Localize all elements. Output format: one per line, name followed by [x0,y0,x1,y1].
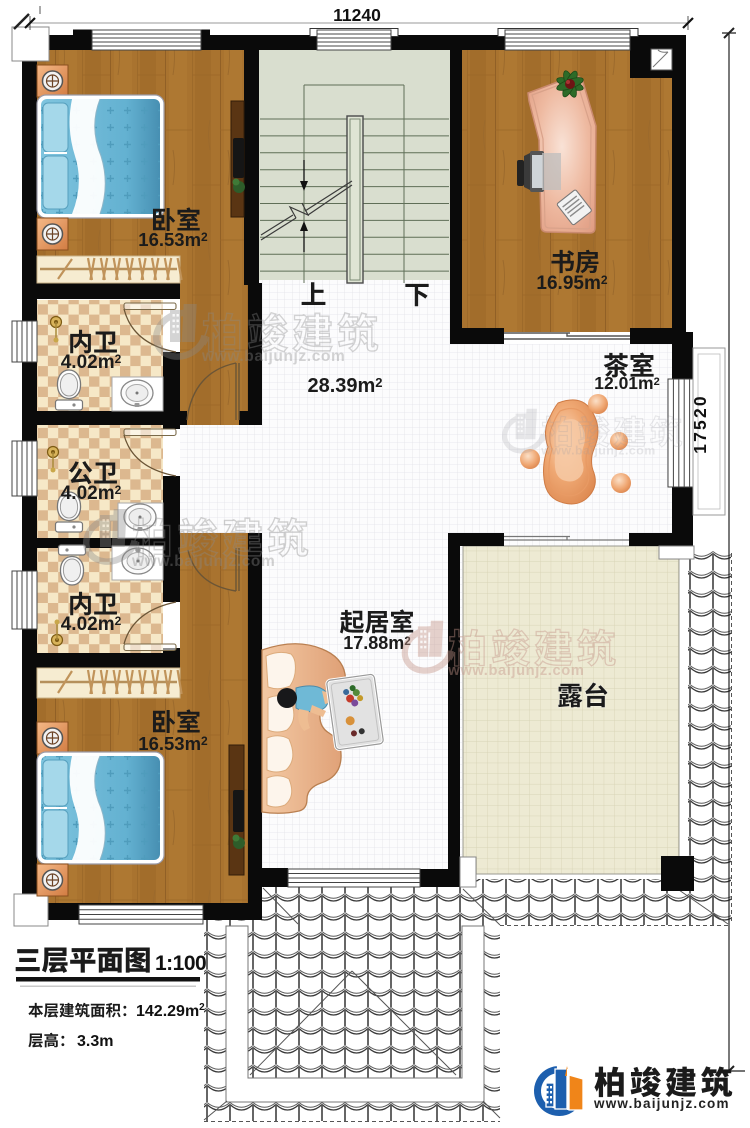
svg-text:4.02m2: 4.02m2 [61,483,122,504]
svg-text:www.baijunjz.com: www.baijunjz.com [593,1096,730,1111]
svg-text:3.3m: 3.3m [77,1033,113,1050]
svg-text:12.01m2: 12.01m2 [594,373,659,393]
svg-text:16.53m2: 16.53m2 [138,733,208,754]
svg-text:17520: 17520 [690,394,710,454]
svg-text:www.baijunjz.com: www.baijunjz.com [447,663,584,679]
svg-text:142.29m2: 142.29m2 [136,1002,205,1020]
svg-text:11240: 11240 [333,5,381,25]
svg-text:16.53m2: 16.53m2 [138,229,208,250]
svg-text:www.baijunjz.com: www.baijunjz.com [201,348,345,365]
svg-text:1:100: 1:100 [155,952,206,975]
svg-text:28.39m2: 28.39m2 [307,375,382,397]
svg-text:16.95m2: 16.95m2 [536,273,607,294]
svg-text:www.baijunjz.com: www.baijunjz.com [131,553,275,570]
svg-text:4.02m2: 4.02m2 [61,352,122,373]
svg-text:www.baijunjz.com: www.baijunjz.com [540,443,656,457]
svg-text:17.88m2: 17.88m2 [343,633,410,653]
svg-text:4.02m2: 4.02m2 [61,614,122,635]
